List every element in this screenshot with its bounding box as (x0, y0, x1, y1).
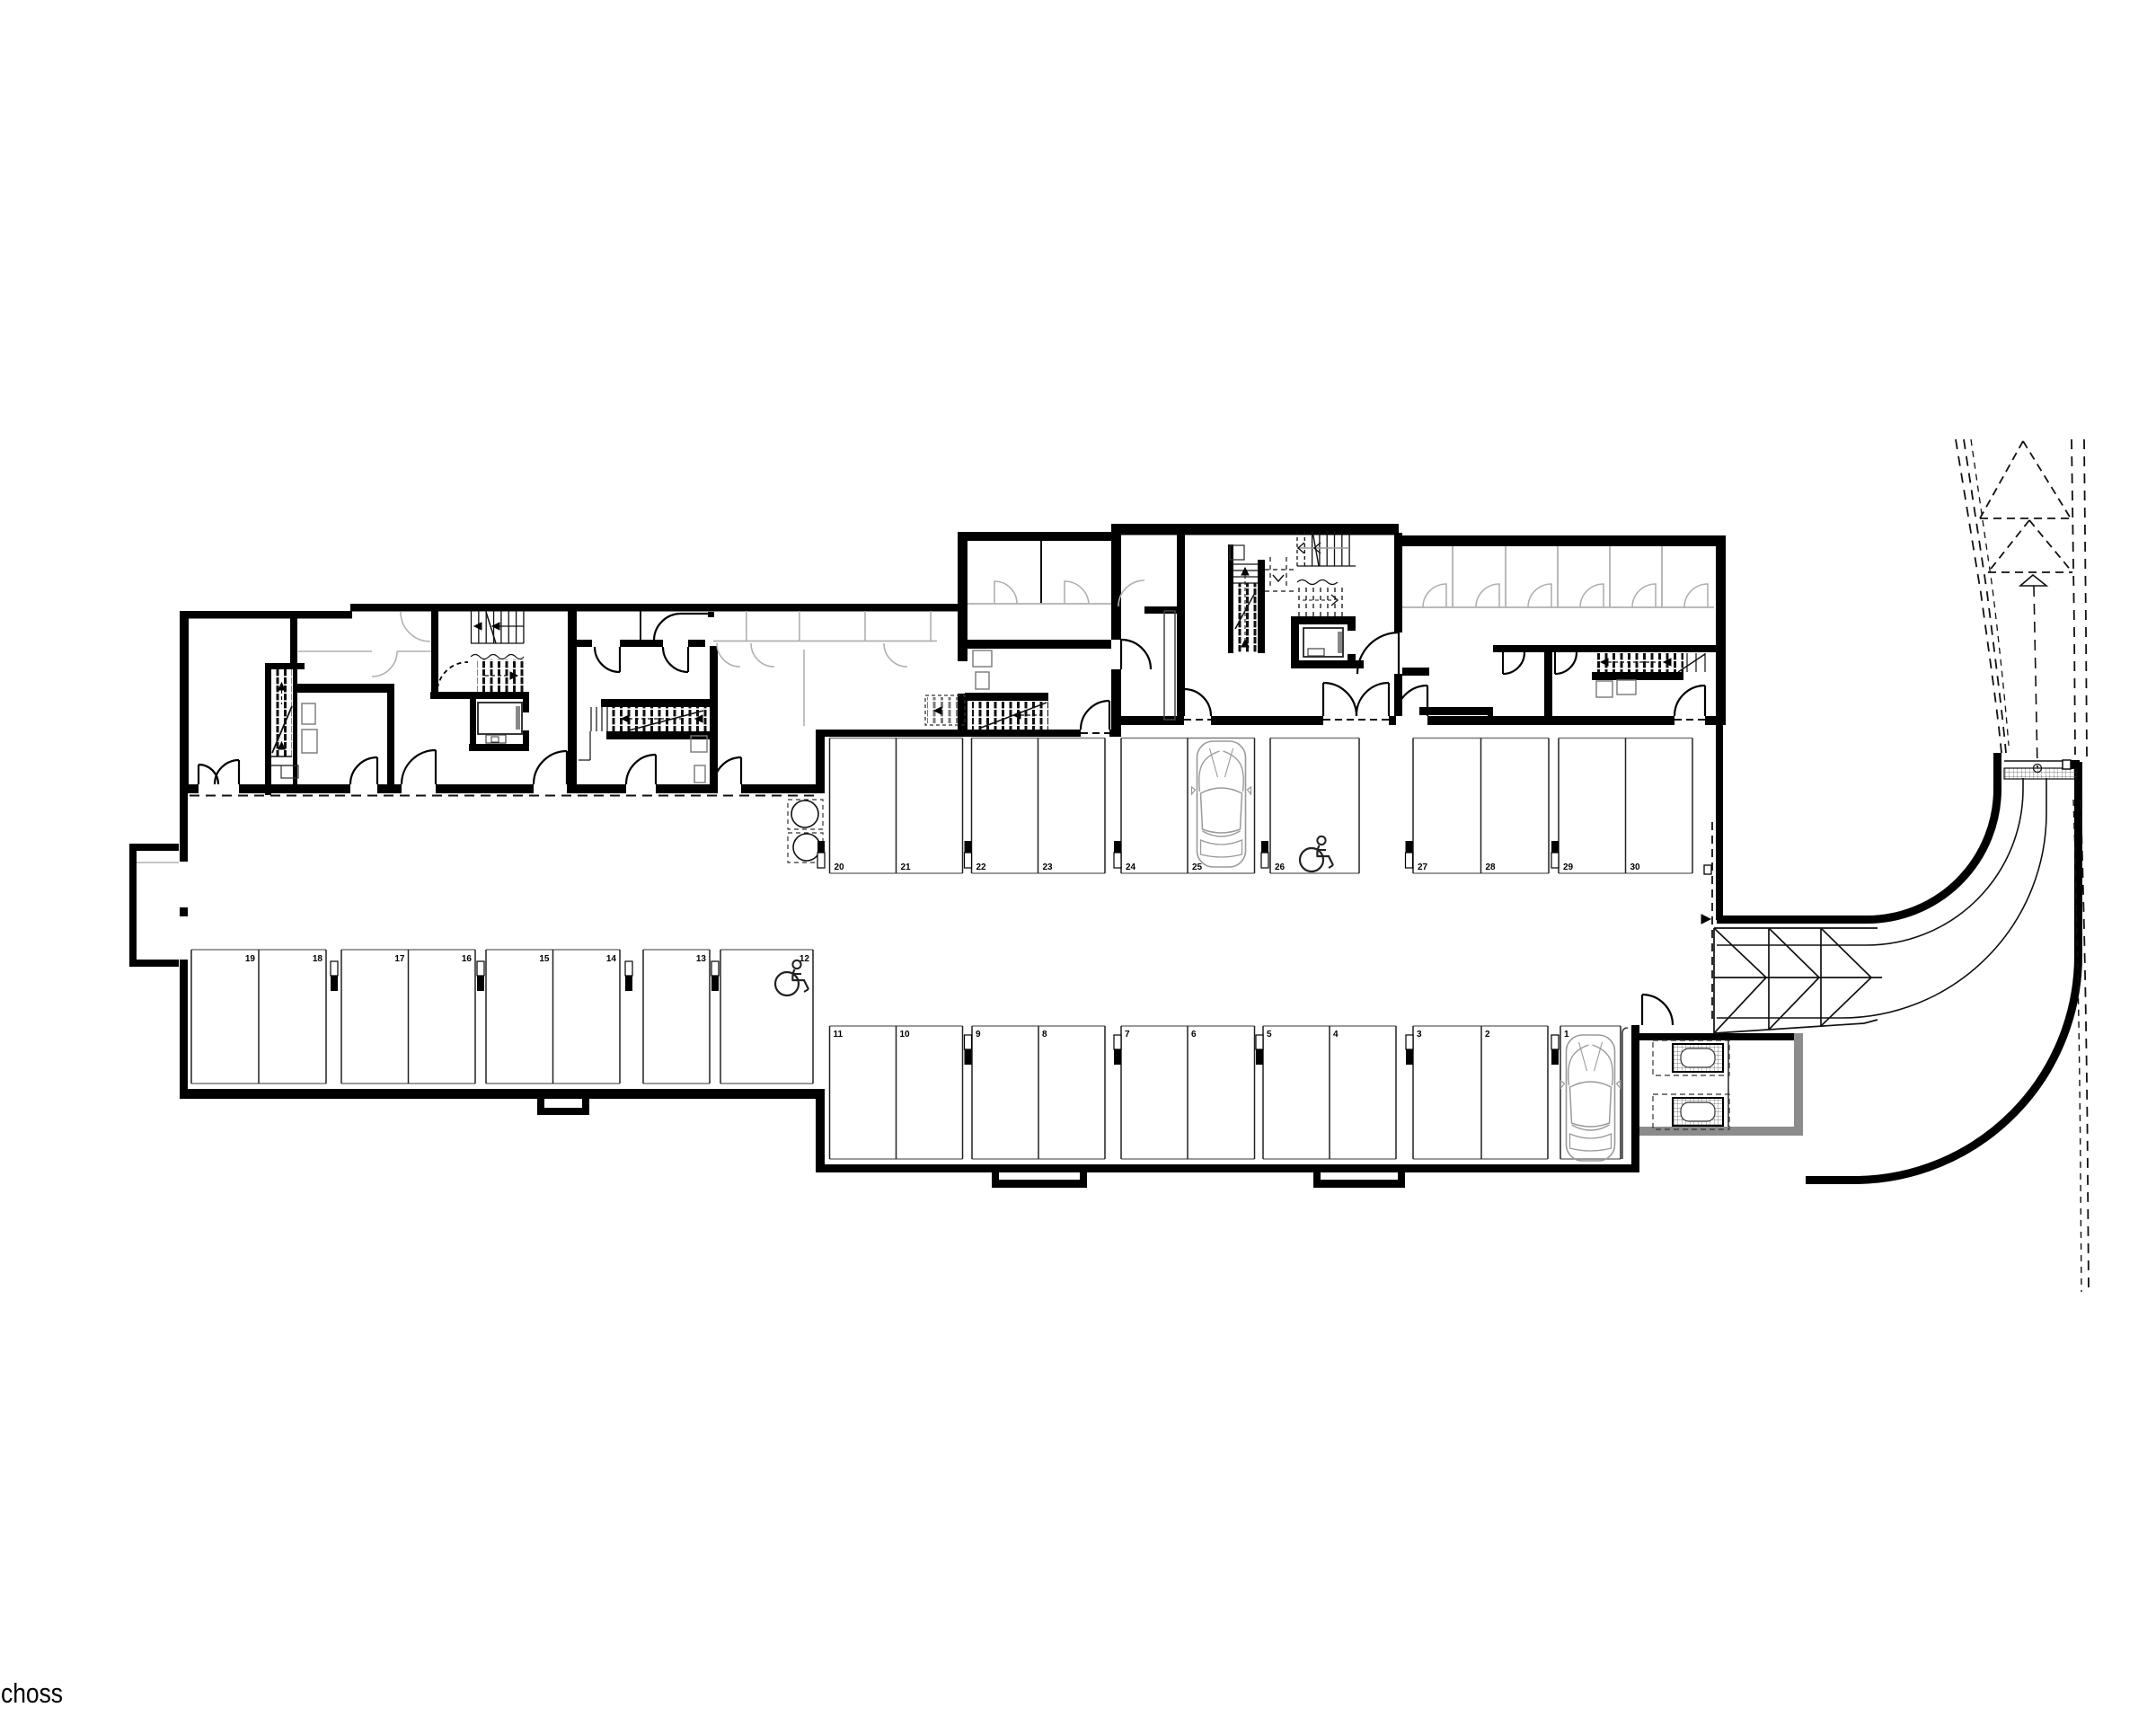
svg-text:2: 2 (1485, 1030, 1490, 1039)
svg-text:18: 18 (313, 954, 323, 964)
svg-text:27: 27 (1418, 862, 1428, 872)
svg-text:6: 6 (1191, 1030, 1197, 1039)
svg-text:10: 10 (900, 1030, 911, 1039)
svg-text:29: 29 (1563, 862, 1574, 872)
svg-text:28: 28 (1486, 862, 1497, 872)
svg-text:30: 30 (1630, 862, 1641, 872)
svg-text:4: 4 (1333, 1030, 1339, 1039)
svg-text:1: 1 (1564, 1030, 1569, 1039)
svg-text:5: 5 (1267, 1030, 1272, 1039)
svg-text:22: 22 (976, 862, 987, 872)
svg-text:13: 13 (696, 954, 707, 964)
svg-text:16: 16 (462, 954, 473, 964)
svg-text:3: 3 (1417, 1030, 1422, 1039)
svg-text:17: 17 (394, 954, 405, 964)
svg-text:15: 15 (539, 954, 550, 964)
svg-text:8: 8 (1042, 1030, 1047, 1039)
svg-text:7: 7 (1125, 1030, 1130, 1039)
svg-text:11: 11 (834, 1030, 844, 1039)
svg-text:20: 20 (835, 862, 845, 872)
svg-text:choss: choss (1, 1677, 63, 1709)
svg-text:26: 26 (1275, 862, 1286, 872)
svg-text:25: 25 (1192, 862, 1203, 872)
svg-text:14: 14 (606, 954, 617, 964)
svg-text:24: 24 (1126, 862, 1136, 872)
svg-text:9: 9 (976, 1030, 981, 1039)
svg-text:19: 19 (245, 954, 256, 964)
svg-text:23: 23 (1043, 862, 1054, 872)
svg-text:21: 21 (901, 862, 912, 872)
